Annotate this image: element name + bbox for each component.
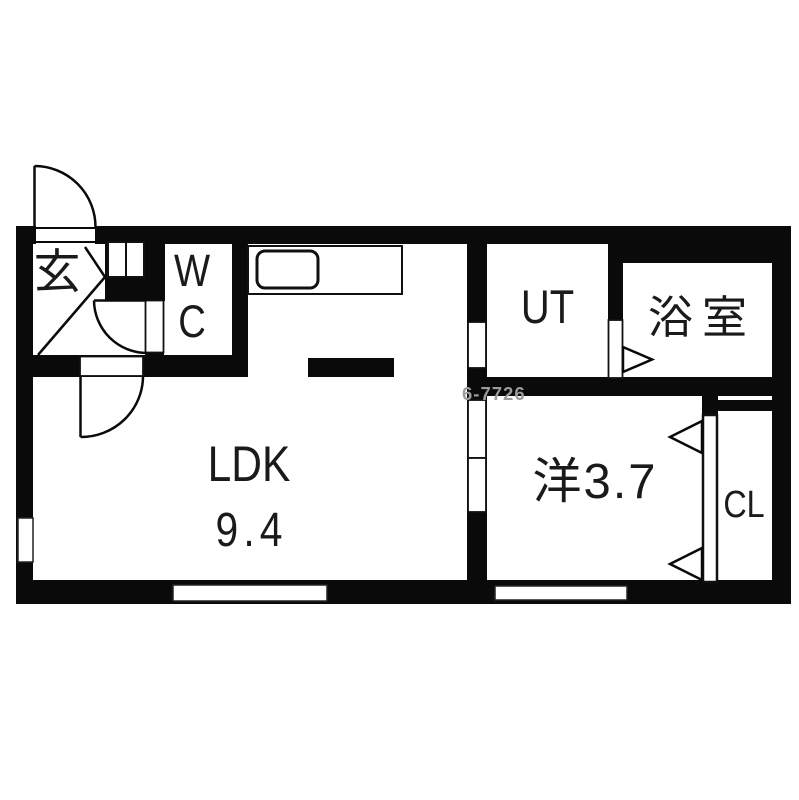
floor-plan-drawing	[0, 0, 799, 800]
floor-plan-image: 玄 WC UT 浴室 LDK 9.4 洋3.7 CL 6-7726	[0, 0, 799, 800]
wall-right	[772, 226, 791, 604]
wall-top-main	[95, 226, 791, 244]
wc-door-arc	[94, 301, 147, 354]
bathroom-label: 浴室	[620, 295, 775, 340]
kitchen-island-counter	[308, 358, 394, 377]
ldk-door-arc	[81, 376, 144, 437]
closet-label: CL	[719, 486, 770, 524]
wall-closet-top-bar	[714, 400, 773, 411]
kitchen-sink	[257, 251, 318, 288]
ldk-area-label: 9.4	[164, 507, 334, 555]
entrance-door-arc	[35, 166, 96, 227]
entrance-cabinet-panel-1	[108, 242, 126, 277]
western-slide-door-panel-2	[468, 458, 486, 512]
closet-door-triangle-bottom	[670, 548, 702, 580]
entrance-cabinet-panel-2	[126, 242, 144, 277]
bath-door-triangle	[623, 347, 652, 372]
window-bottom-ldk	[173, 585, 327, 601]
wc-label-line1: W	[174, 245, 210, 296]
wall-bottom	[16, 580, 791, 604]
wall-top-right-band	[608, 244, 791, 263]
ldk-door-opening	[80, 357, 143, 377]
wc-label-line2: C	[178, 296, 206, 347]
western-room-label: 洋3.7	[487, 458, 703, 507]
wc-room-label: WC	[163, 245, 221, 347]
ut-door-opening	[468, 322, 486, 368]
window-bottom-western	[495, 586, 627, 600]
western-slide-door-panel-1	[468, 400, 486, 458]
genkan-step-corner	[85, 247, 105, 277]
closet-slide-door-track	[703, 415, 717, 582]
wc-door-opening	[146, 301, 164, 353]
ldk-room-label: LDK	[164, 439, 334, 489]
ut-room-label: UT	[496, 283, 599, 330]
window-left-wall	[18, 518, 33, 562]
genkan-room-label: 玄	[33, 248, 81, 295]
closet-door-triangle-top	[670, 421, 702, 453]
watermark-text: 6-7726	[462, 385, 582, 404]
